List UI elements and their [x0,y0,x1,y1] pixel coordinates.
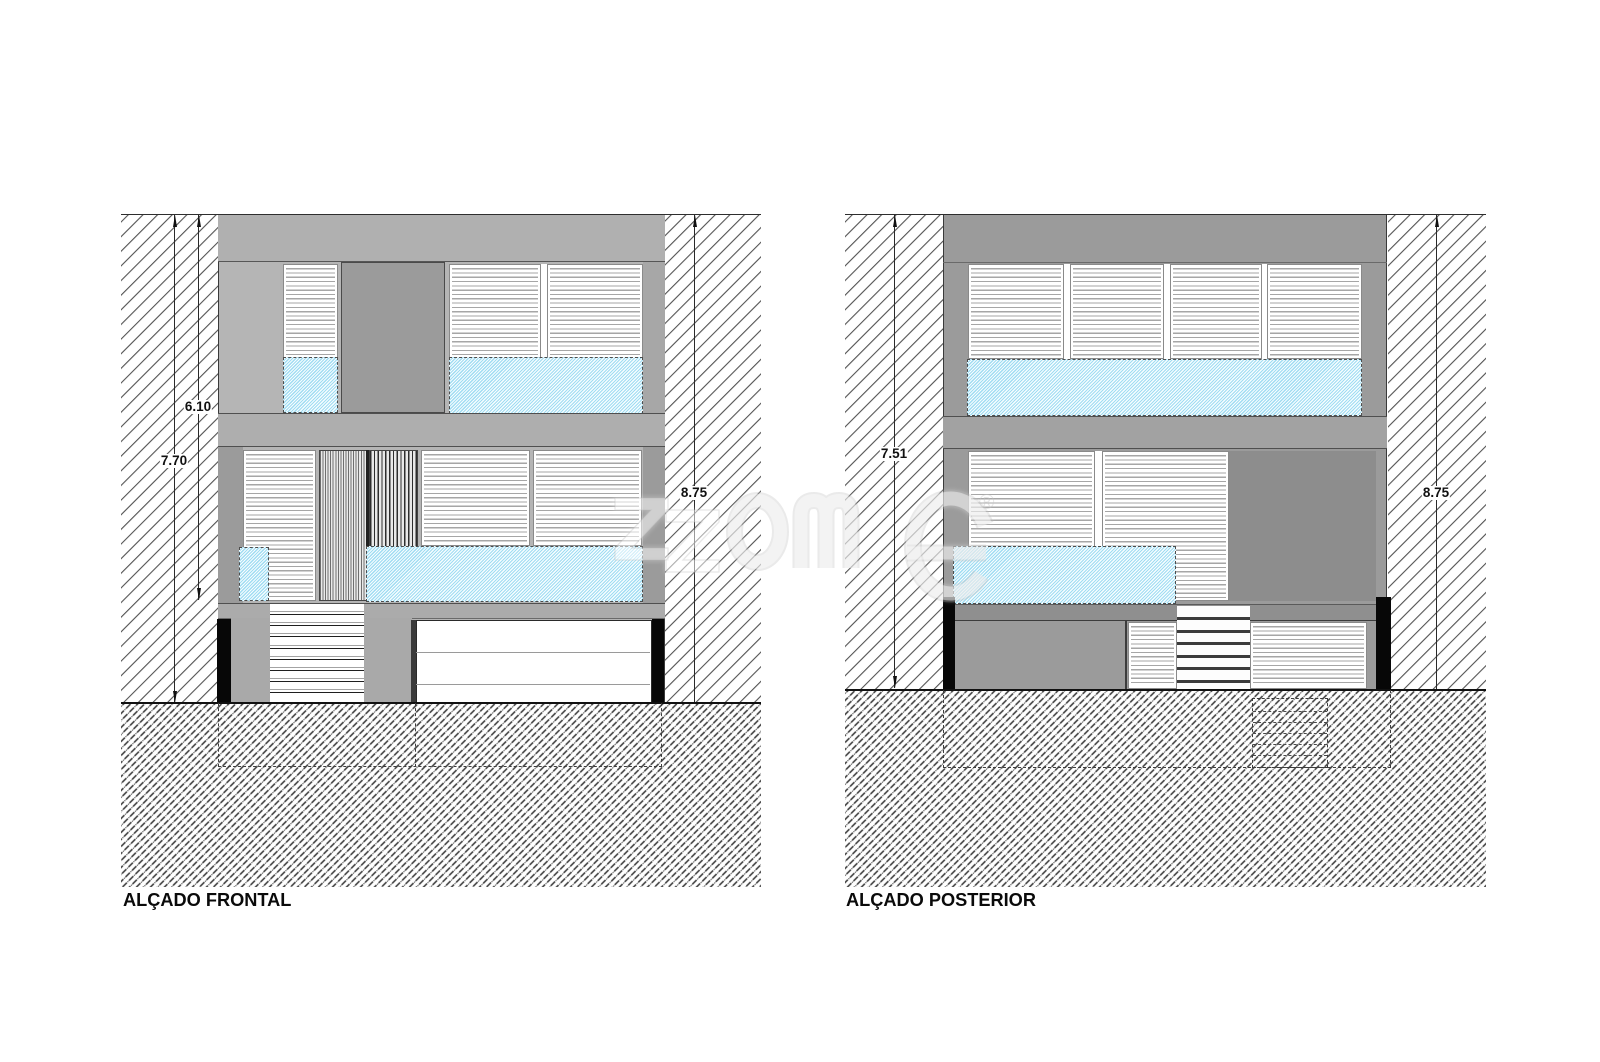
svg-text:®: ® [979,491,995,514]
